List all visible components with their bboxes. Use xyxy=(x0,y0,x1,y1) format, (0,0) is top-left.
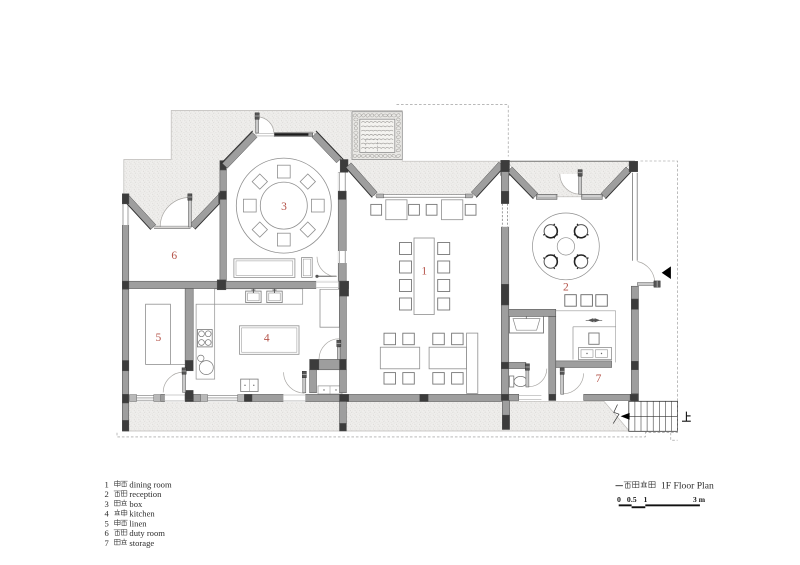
svg-text:3 m: 3 m xyxy=(693,495,706,504)
svg-text:4: 4 xyxy=(264,332,270,344)
svg-text:7: 7 xyxy=(596,373,602,385)
svg-text:1: 1 xyxy=(643,495,647,504)
svg-text:1: 1 xyxy=(421,266,427,278)
svg-text:kitchen: kitchen xyxy=(129,509,155,519)
svg-text:linen: linen xyxy=(129,518,147,528)
svg-text:5: 5 xyxy=(156,332,162,344)
svg-text:1: 1 xyxy=(105,479,109,489)
svg-text:0.5: 0.5 xyxy=(627,495,637,504)
svg-text:7: 7 xyxy=(105,538,110,548)
svg-text:1F Floor Plan: 1F Floor Plan xyxy=(661,480,714,491)
svg-text:6: 6 xyxy=(105,528,110,538)
svg-text:3: 3 xyxy=(105,499,109,509)
svg-text:box: box xyxy=(129,499,143,509)
svg-text:2: 2 xyxy=(563,282,569,294)
svg-text:dining room: dining room xyxy=(129,479,172,489)
svg-text:5: 5 xyxy=(105,518,109,528)
svg-text:2: 2 xyxy=(105,489,109,499)
svg-text:4: 4 xyxy=(105,509,110,519)
svg-text:storage: storage xyxy=(129,538,154,548)
svg-text:6: 6 xyxy=(171,250,177,262)
svg-text:duty room: duty room xyxy=(129,528,165,538)
svg-text:reception: reception xyxy=(129,489,162,499)
svg-text:0: 0 xyxy=(617,495,621,504)
svg-text:3: 3 xyxy=(281,201,287,213)
